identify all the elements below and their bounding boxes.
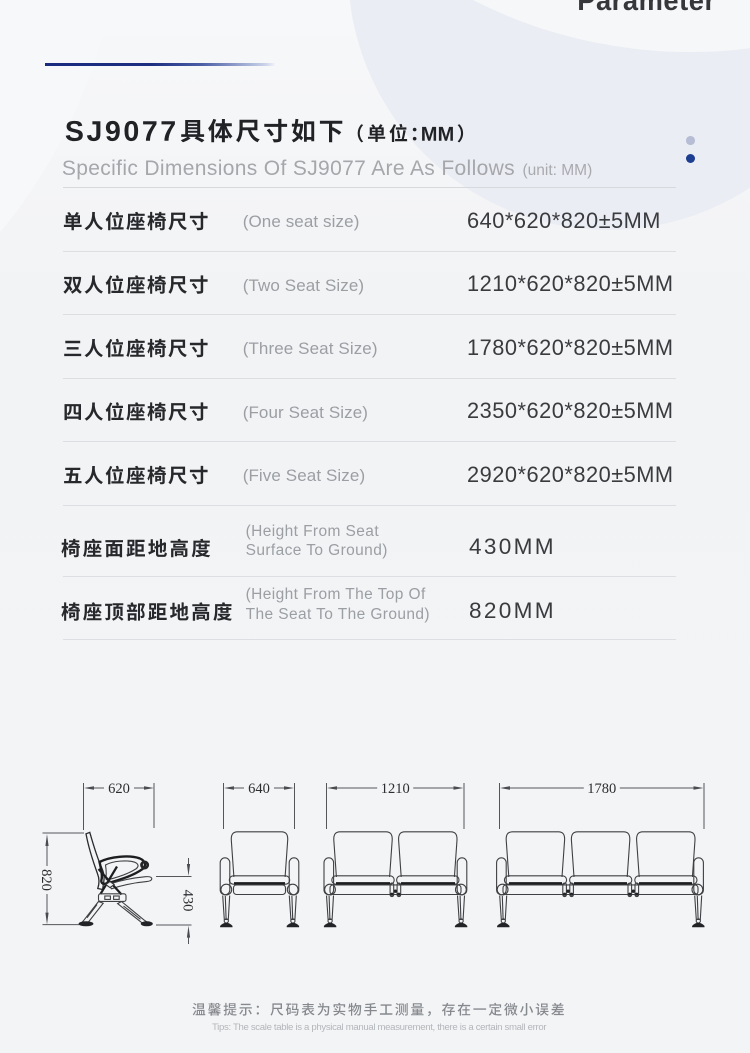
svg-text:620: 620 [108,781,130,797]
svg-text:640: 640 [248,781,270,797]
svg-text:430: 430 [180,890,196,912]
svg-text:1780: 1780 [587,781,616,797]
svg-text:1210: 1210 [381,781,410,797]
svg-text:820: 820 [38,869,54,891]
